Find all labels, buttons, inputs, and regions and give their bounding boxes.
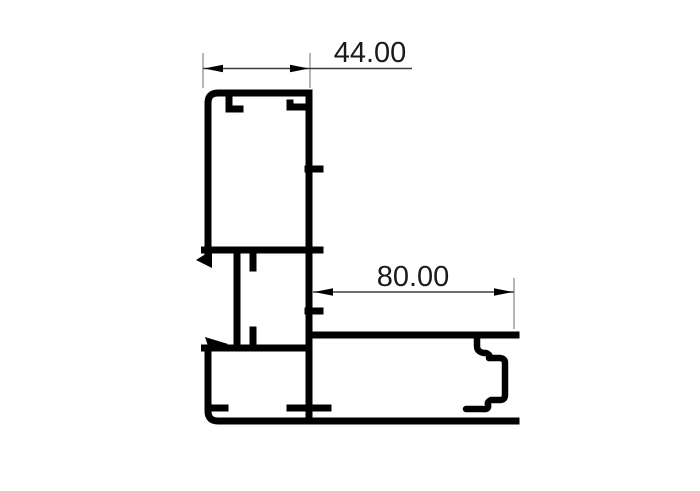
gasket-channel-group: [466, 337, 505, 409]
dimension-arrow-left: [204, 65, 223, 73]
dimension-arrow-left: [314, 288, 333, 296]
dimension-80-group: 80.00: [313, 261, 514, 329]
dimension-arrow-right: [494, 288, 513, 296]
gasket-channel-hook: [466, 337, 505, 409]
profile-outline-group: [205, 93, 517, 421]
dimension-arrow-right: [290, 65, 309, 73]
left-screw-hook: [229, 96, 240, 109]
top-profile-outline: [208, 93, 309, 418]
cad-profile-drawing: 44.00 80.00: [0, 0, 700, 491]
profile-section-svg: 44.00 80.00: [0, 0, 700, 491]
right-screw-hook: [290, 103, 306, 107]
dim-label-44: 44.00: [334, 37, 407, 69]
dimension-44-group: 44.00: [203, 37, 412, 88]
barb-group: [196, 250, 228, 352]
dim-label-80: 80.00: [377, 261, 450, 293]
